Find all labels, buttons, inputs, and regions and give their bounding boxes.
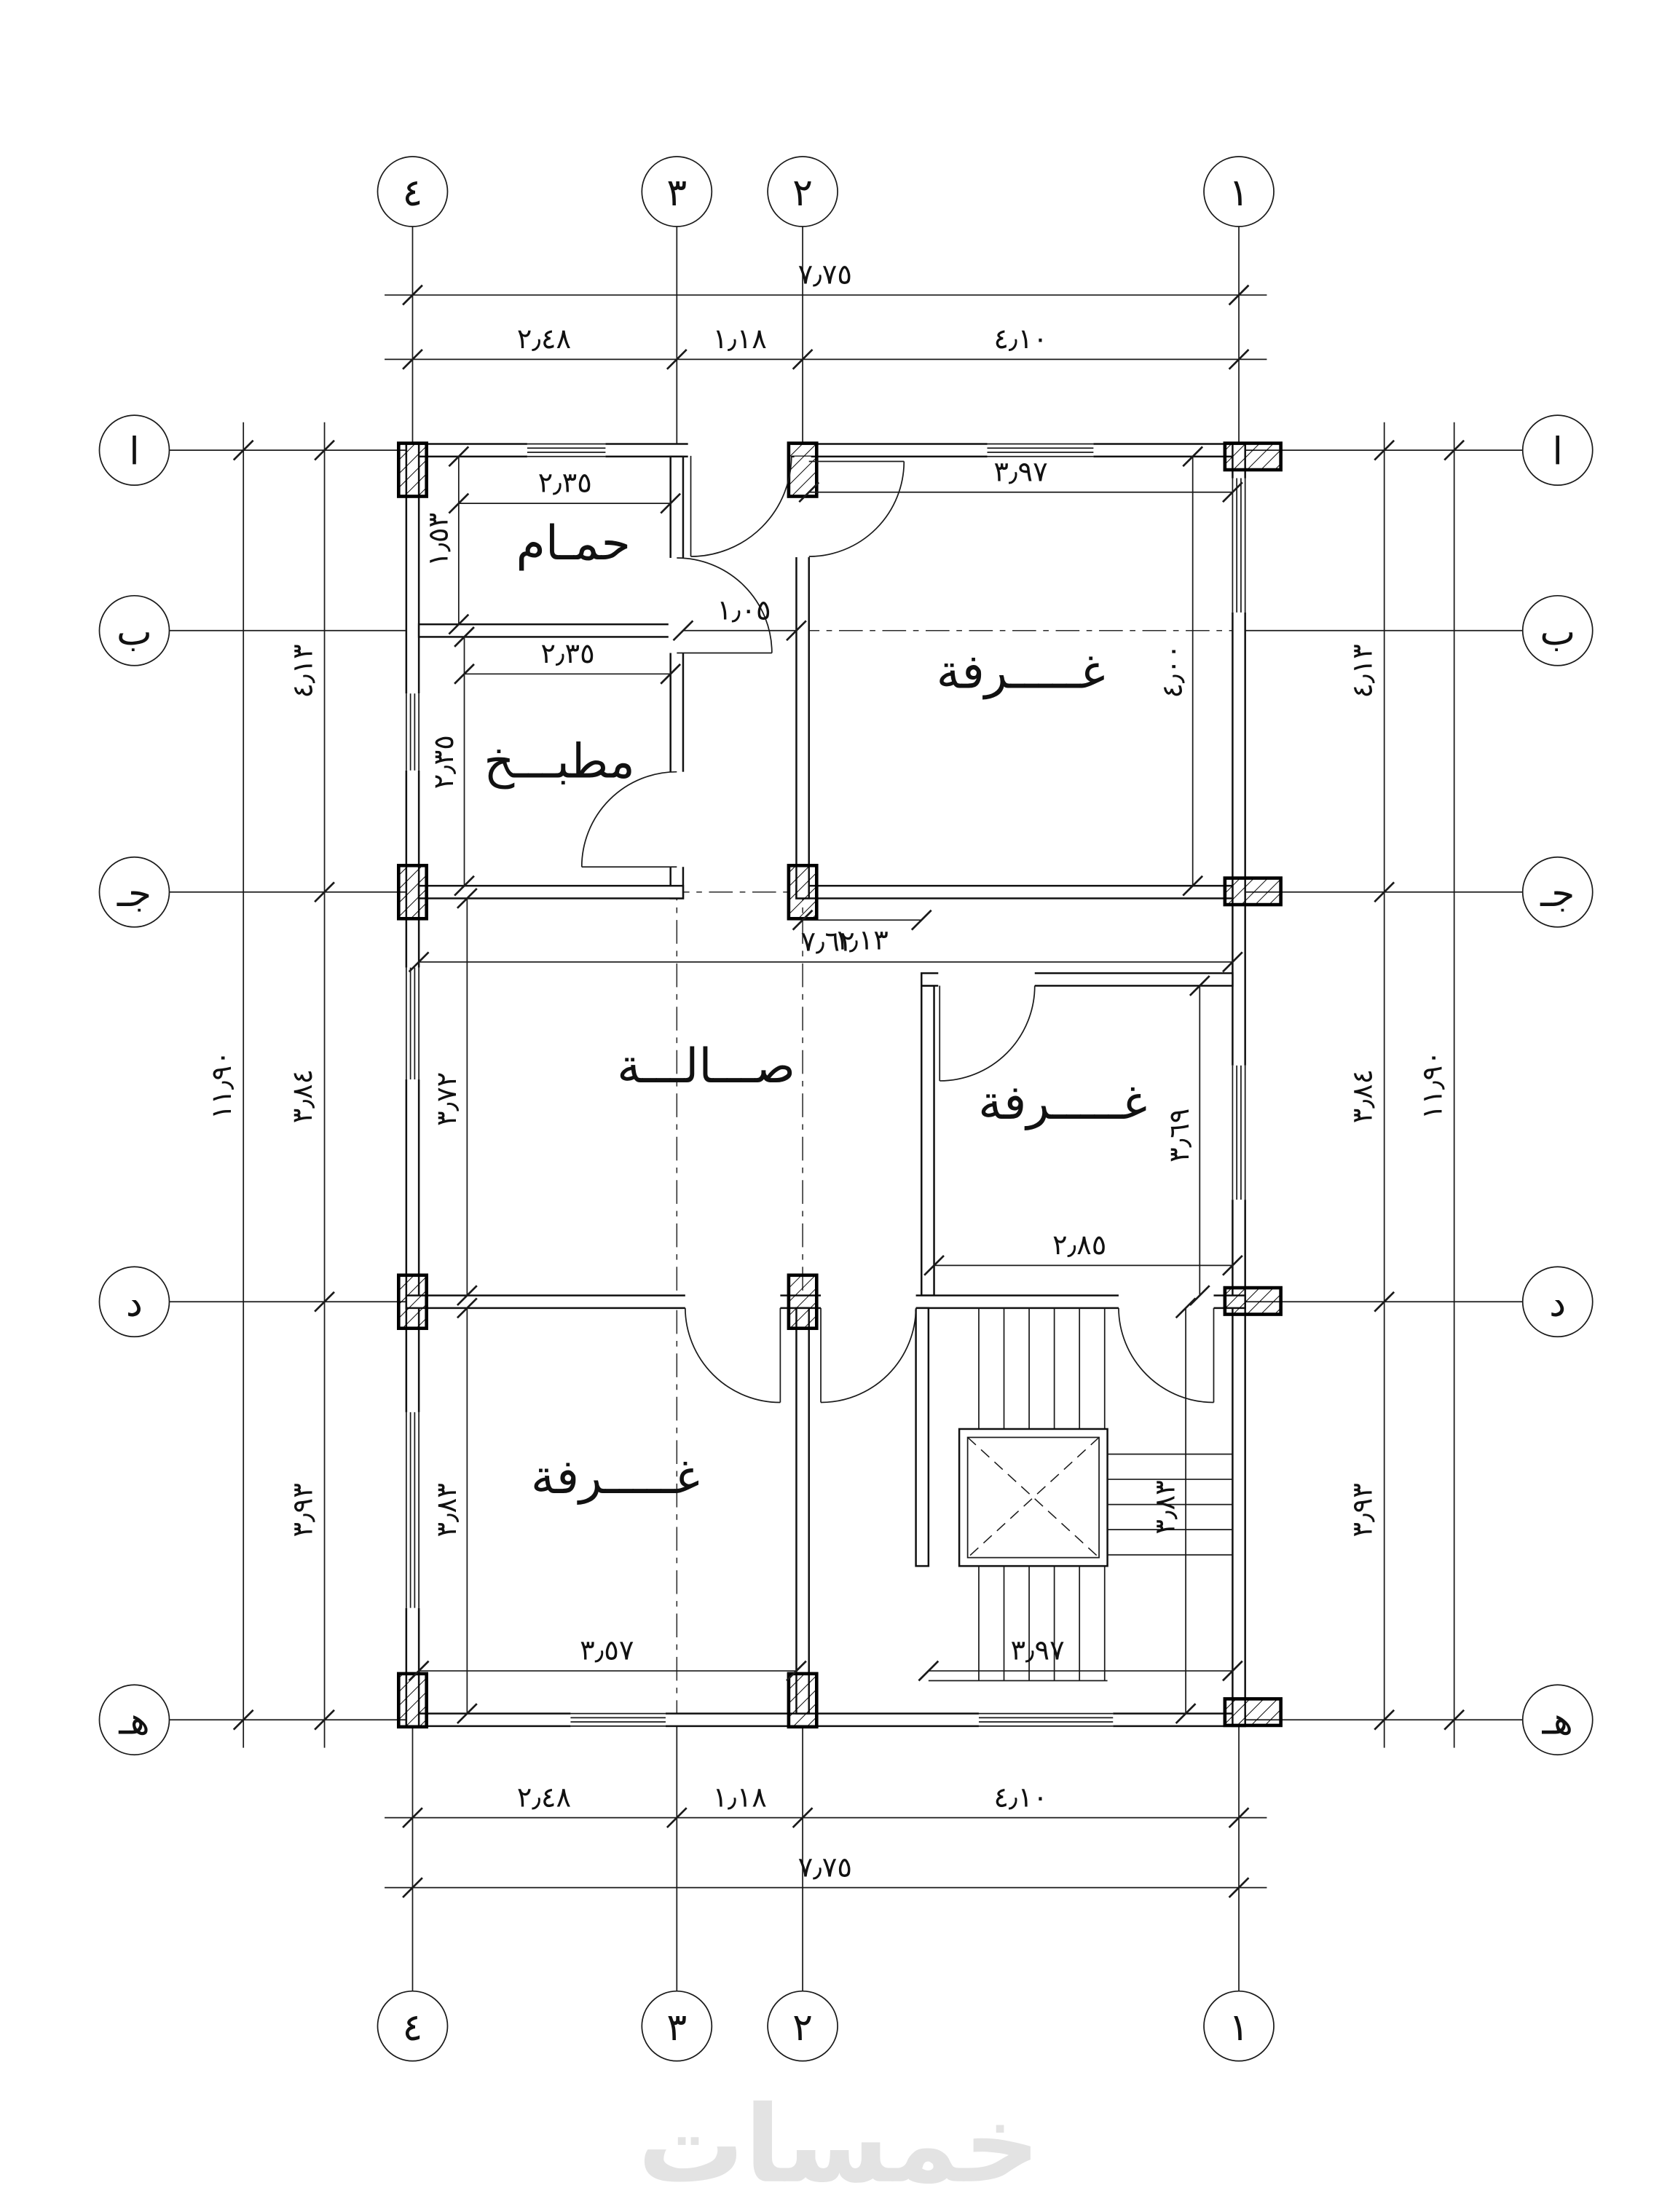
dim-bedroom3-width: ٣٫٥٧: [580, 1634, 634, 1667]
door-lobby: [821, 1308, 916, 1403]
dim-bottom-seg3: ٤٫١٠: [993, 1781, 1047, 1814]
window-left-bedroom3: [405, 1412, 420, 1608]
label-bathroom: حمـام: [516, 516, 631, 571]
bubble-rowA-left: ا: [129, 430, 139, 473]
stair-treads-upper: [979, 1308, 1105, 1429]
bubble-rowE-left: هـ: [118, 1699, 150, 1743]
dim-kitchen-height: ٢٫٣٥: [428, 735, 460, 789]
bubble-rowA-right: ا: [1553, 430, 1563, 473]
dim-bedroom1-height: ٤٫٠٠: [1156, 644, 1189, 698]
door-bedroom1: [809, 462, 905, 557]
window-top-1: [527, 443, 606, 458]
bubble-rowD-right: د: [1549, 1281, 1566, 1325]
dim-bedroom2-height: ٣٫٦٩: [1163, 1109, 1196, 1162]
floor-plan-sheet: ٧٫٧٥ ٢٫٤٨ ١٫١٨ ٤٫١٠ ٢٫٤٨ ١٫١٨ ٤٫١٠ ٧٫٧٥ …: [0, 0, 1678, 2212]
bubble-col1-bottom: ١: [1229, 2006, 1249, 2050]
window-left-hall: [405, 967, 420, 1079]
bubble-rowB-right: ب: [1540, 610, 1575, 654]
window-left-kitchen: [405, 693, 420, 771]
bubble-rowE-right: هـ: [1541, 1699, 1573, 1743]
bubble-rowD-left: د: [126, 1281, 143, 1325]
dimension-chains: ٧٫٧٥ ٢٫٤٨ ١٫١٨ ٤٫١٠ ٢٫٤٨ ١٫١٨ ٤٫١٠ ٧٫٧٥ …: [205, 259, 1464, 1897]
bubble-col1-top: ١: [1229, 171, 1249, 215]
dim-left-overall: ١١٫٩٠: [205, 1050, 238, 1119]
dim-top-seg3: ٤٫١٠: [993, 323, 1047, 355]
dim-hall-width: ٧٫٦٢: [800, 925, 854, 958]
bubble-rowC-right: جـ: [1540, 872, 1575, 916]
dim-bathroom-height: ١٫٥٣: [422, 513, 454, 567]
dim-bottom-overall: ٧٫٧٥: [798, 1851, 852, 1884]
label-bedroom3: غـــــرفة: [531, 1449, 700, 1505]
dim-left-seg3: ٣٫٩٣: [286, 1483, 319, 1537]
label-bedroom2: غـــــرفة: [978, 1075, 1147, 1130]
dim-bottom-seg2: ١٫١٨: [713, 1781, 767, 1814]
dim-bedroom1-width: ٣٫٩٧: [993, 455, 1047, 488]
window-right-bedroom1: [1231, 479, 1246, 613]
dim-right-overall: ١١٫٩٠: [1416, 1050, 1449, 1119]
window-right-bedroom2: [1231, 1066, 1246, 1200]
stair-core: [929, 1308, 1233, 1681]
dim-kitchen-width: ٢٫٣٥: [540, 637, 594, 670]
label-bedroom1: غـــــرفة: [937, 645, 1106, 700]
door-bedroom2: [940, 985, 1035, 1081]
dim-right-seg1: ٤٫١٣: [1346, 644, 1379, 698]
floor-plan-drawing: ٧٫٧٥ ٢٫٤٨ ١٫١٨ ٤٫١٠ ٢٫٤٨ ١٫١٨ ٤٫١٠ ٧٫٧٥ …: [0, 0, 1678, 2212]
dim-corridor-width: ١٫٠٥: [717, 594, 771, 626]
dim-top-overall: ٧٫٧٥: [798, 259, 852, 291]
bubble-col3-top: ٣: [666, 171, 687, 215]
khamsat-watermark: خمسات: [638, 2084, 1041, 2207]
bubble-col2-bottom: ٢: [792, 2006, 813, 2050]
bubble-rowC-left: جـ: [117, 872, 151, 916]
dim-hall-height: ٣٫٧٢: [430, 1072, 463, 1126]
dim-stairs-height: ٣٫٨٣: [1149, 1480, 1182, 1534]
dim-top-seg2: ١٫١٨: [713, 323, 767, 355]
dim-left-seg2: ٣٫٨٤: [286, 1069, 319, 1123]
door-entrance: [691, 456, 792, 556]
door-stairs: [1119, 1308, 1214, 1403]
dim-bedroom3-height: ٣٫٨٣: [430, 1483, 463, 1537]
door-openings: [669, 442, 1214, 1310]
label-kitchen: مطبـــخ: [484, 733, 635, 789]
dim-stairs-width: ٣٫٩٧: [1010, 1634, 1064, 1667]
window-bottom-1: [570, 1712, 666, 1728]
bubble-col3-bottom: ٣: [666, 2006, 687, 2050]
dim-top-seg1: ٢٫٤٨: [517, 323, 571, 355]
dim-right-seg2: ٣٫٨٤: [1346, 1069, 1379, 1123]
dim-bathroom-width: ٢٫٣٥: [538, 467, 592, 500]
bubble-rowB-left: ب: [117, 610, 152, 654]
dim-bottom-seg1: ٢٫٤٨: [517, 1781, 571, 1814]
door-bedroom3: [685, 1308, 781, 1403]
bubble-col4-top: ٤: [403, 171, 423, 215]
bubble-col2-top: ٢: [792, 171, 813, 215]
label-hall: صـــالـــة: [617, 1039, 795, 1094]
window-bottom-2: [979, 1712, 1113, 1728]
dim-right-seg3: ٣٫٩٣: [1346, 1483, 1379, 1537]
bubble-col4-bottom: ٤: [403, 2006, 423, 2050]
elevator-shaft: [959, 1429, 1107, 1566]
dim-bedroom2-width: ٢٫٨٥: [1052, 1229, 1106, 1262]
dim-left-seg1: ٤٫١٣: [286, 644, 319, 698]
